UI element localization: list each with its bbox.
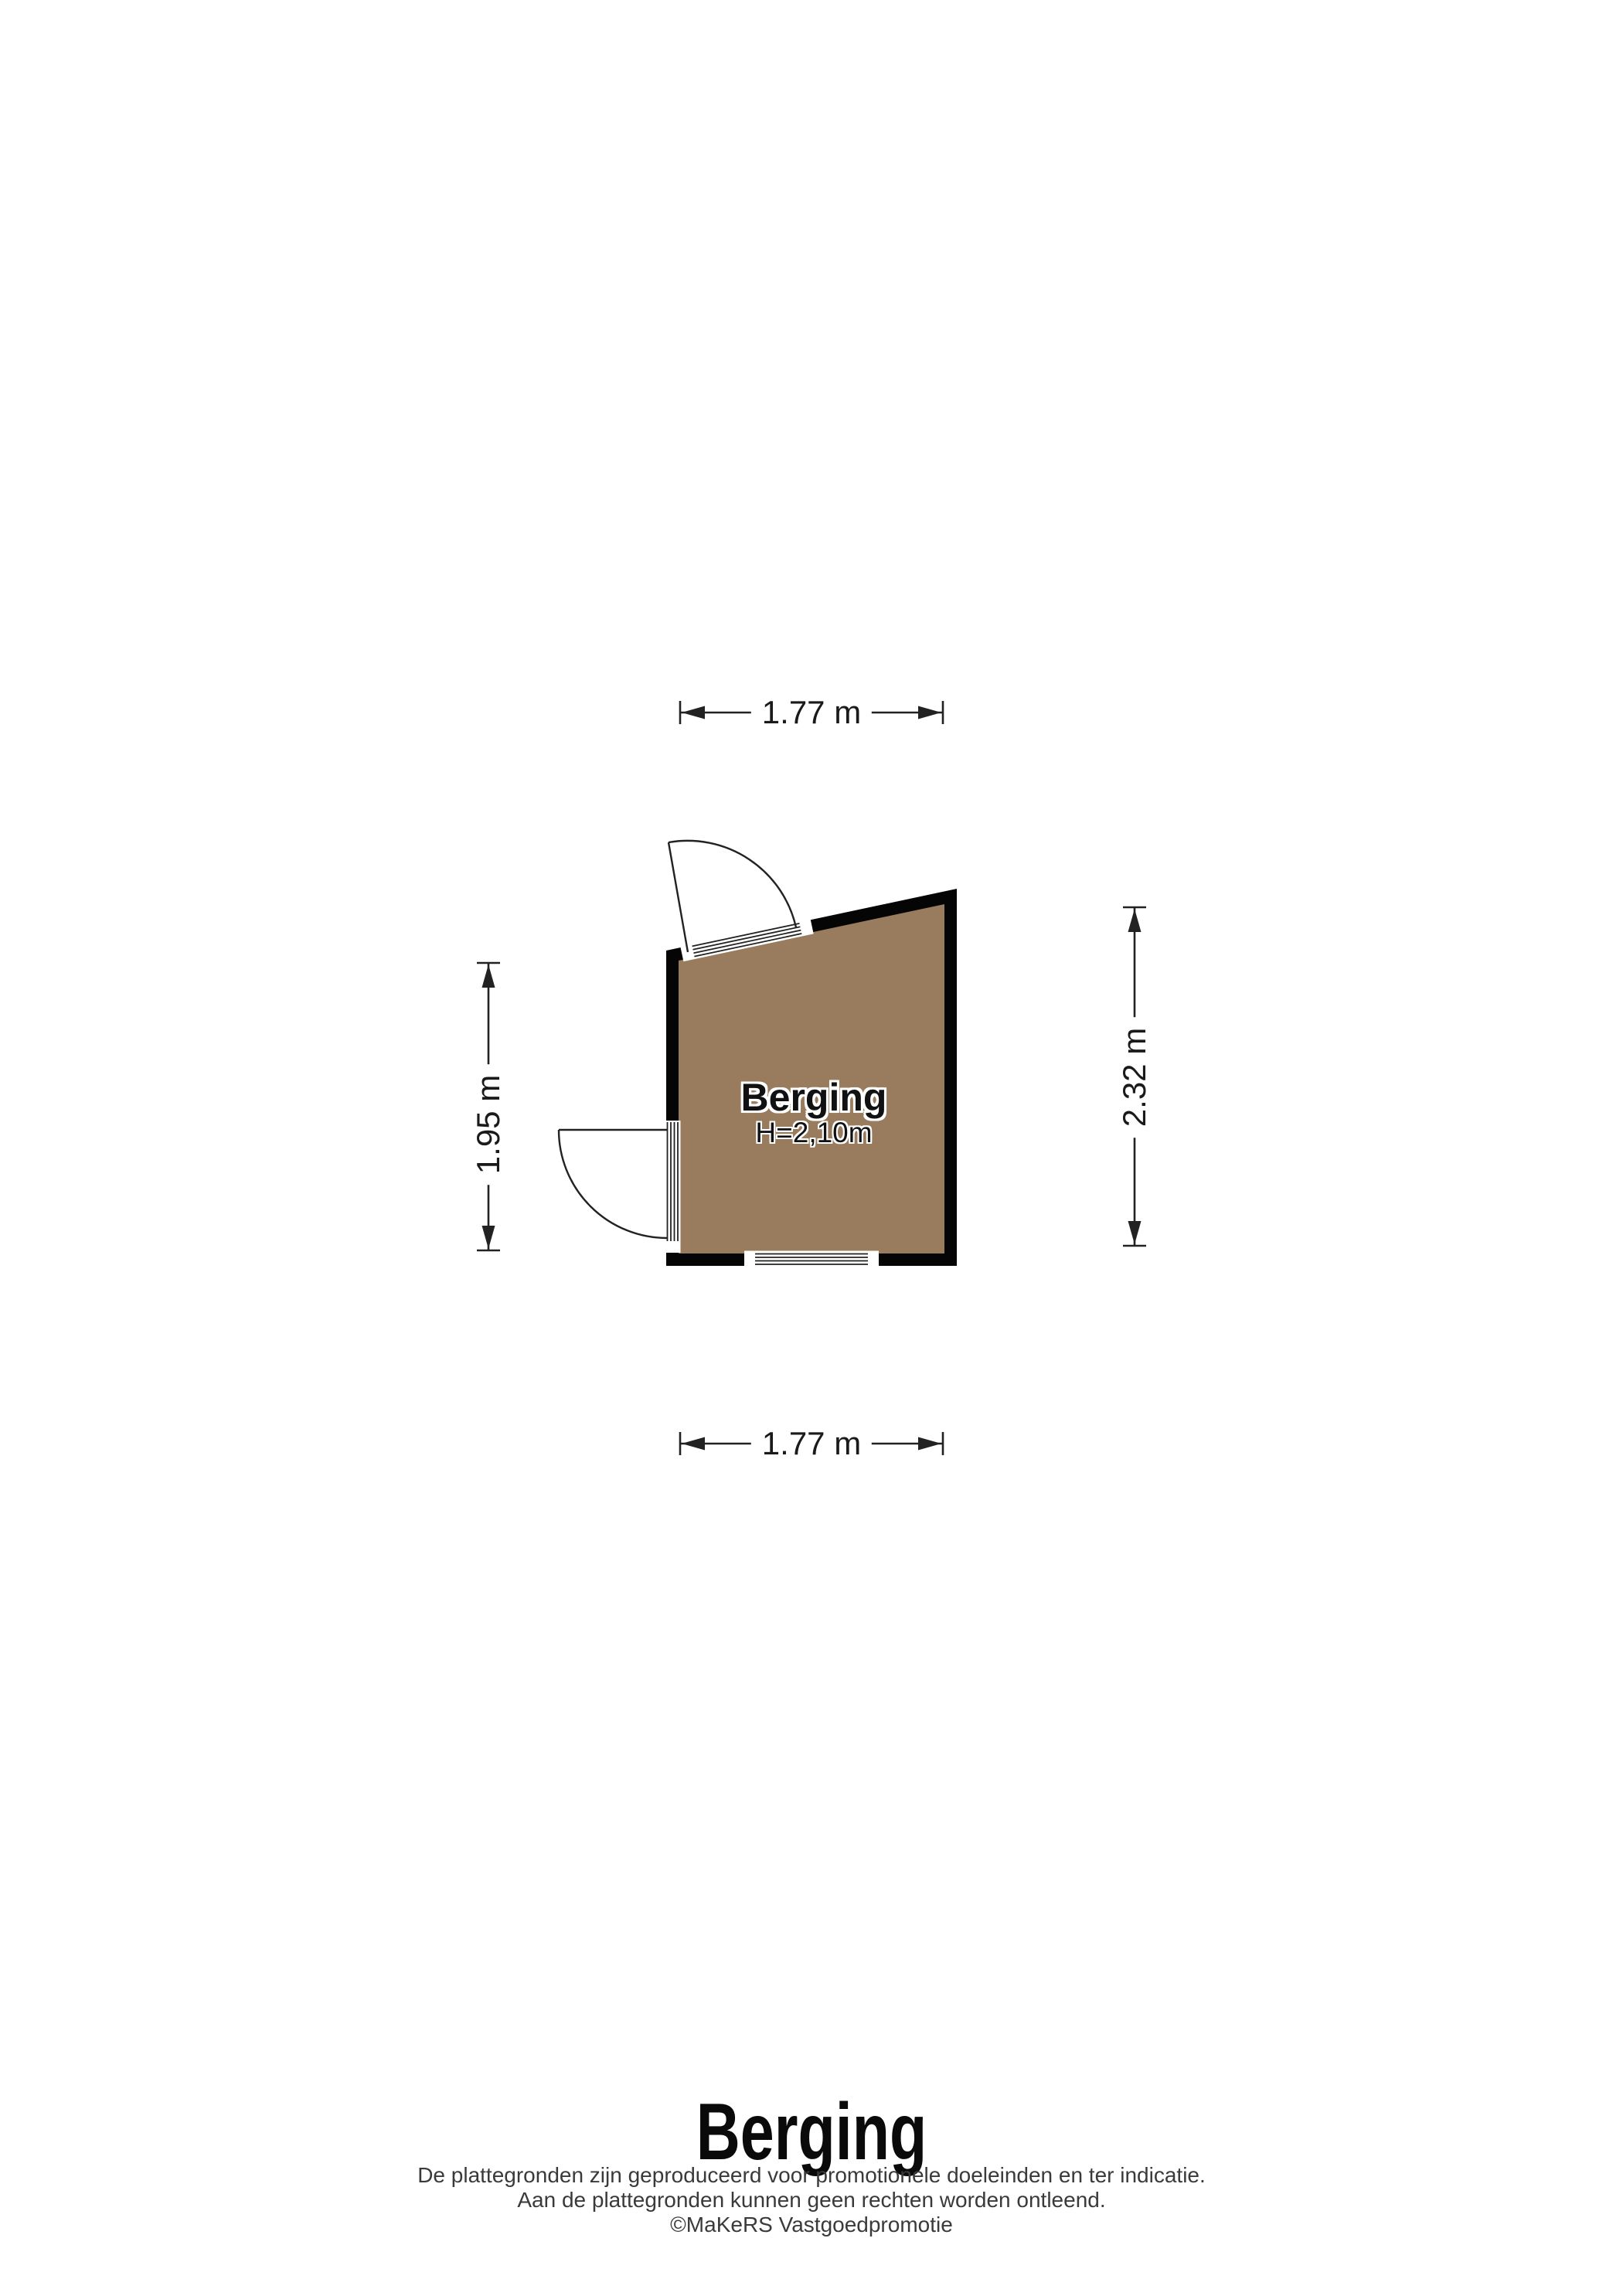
floor-title: Berging	[696, 2091, 927, 2173]
room-name-label: Berging	[741, 1077, 887, 1117]
dimension-label-bottom: 1.77 m	[751, 1426, 872, 1461]
left-door-arc	[559, 1130, 667, 1238]
footer-disclaimer: De plattegronden zijn geproduceerd voor …	[0, 2163, 1623, 2237]
copyright-line: ©MaKeRS Vastgoedpromotie	[0, 2213, 1623, 2237]
room-ceiling-height-label: H=2,10m	[755, 1117, 872, 1148]
left-door-frame	[665, 1121, 681, 1253]
bottom-window	[744, 1251, 879, 1268]
dimension-label-left: 1.95 m	[471, 1064, 506, 1185]
top-door-leaf	[669, 842, 688, 952]
dimension-label-top: 1.77 m	[751, 695, 872, 730]
dimension-label-right: 2.32 m	[1117, 1017, 1152, 1138]
disclaimer-line-1: De plattegronden zijn geproduceerd voor …	[0, 2163, 1623, 2188]
disclaimer-line-2: Aan de plattegronden kunnen geen rechten…	[0, 2188, 1623, 2213]
floorplan-page: 1.77 m 1.77 m 1.95 m 2.32 m Berging H=2,…	[0, 0, 1623, 2296]
top-door-arc	[669, 841, 796, 927]
